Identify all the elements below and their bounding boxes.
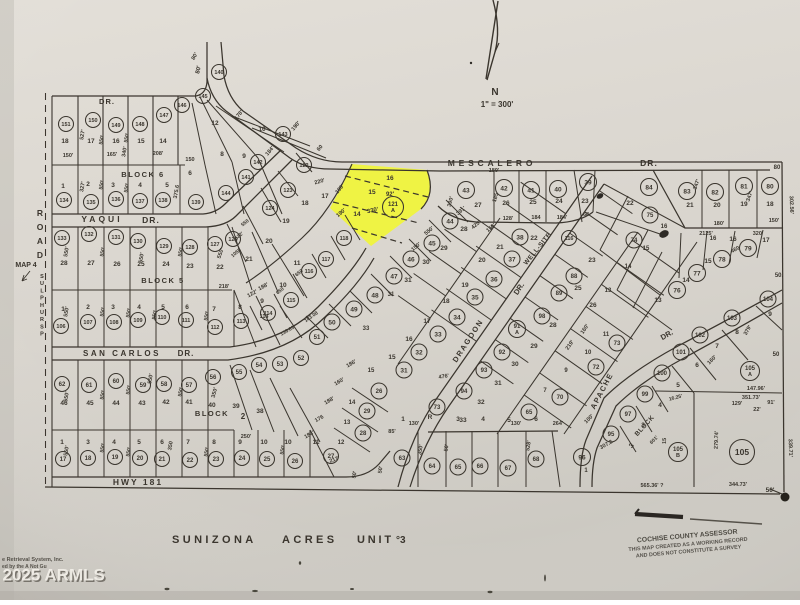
svg-text:1: 1 — [401, 416, 405, 423]
svg-text:264': 264' — [553, 421, 564, 427]
svg-text:P: P — [40, 332, 44, 338]
svg-text:127: 127 — [210, 242, 219, 248]
svg-text:47: 47 — [390, 273, 398, 280]
svg-text:83: 83 — [683, 188, 691, 195]
svg-text:P: P — [40, 296, 44, 302]
svg-text:9: 9 — [768, 311, 772, 318]
svg-text:40: 40 — [208, 402, 216, 409]
svg-text:98: 98 — [539, 314, 546, 320]
svg-text:140: 140 — [214, 70, 223, 76]
svg-text:218': 218' — [219, 284, 230, 290]
svg-text:107: 107 — [83, 320, 92, 326]
svg-text:130': 130' — [511, 421, 522, 427]
svg-text:U: U — [40, 310, 44, 316]
svg-text:75: 75 — [647, 213, 654, 219]
svg-text:146: 146 — [177, 103, 186, 109]
svg-text:26: 26 — [376, 389, 383, 395]
svg-text:141: 141 — [241, 175, 250, 181]
svg-text:104: 104 — [763, 297, 774, 303]
svg-text:U: U — [40, 281, 44, 287]
svg-text:2025 ARMLS: 2025 ARMLS — [3, 566, 105, 585]
svg-text:14: 14 — [353, 211, 361, 218]
svg-text:184': 184' — [557, 215, 568, 221]
svg-text:55: 55 — [236, 370, 243, 376]
svg-text:189': 189' — [489, 168, 500, 174]
svg-text:54: 54 — [256, 363, 263, 369]
svg-text:19: 19 — [282, 218, 290, 225]
svg-text:27: 27 — [474, 202, 482, 209]
svg-text:45: 45 — [428, 240, 436, 247]
svg-text:13: 13 — [605, 288, 612, 294]
svg-text:100: 100 — [657, 371, 668, 377]
svg-text:30: 30 — [422, 259, 430, 266]
svg-text:25: 25 — [529, 199, 537, 206]
svg-text:16: 16 — [112, 138, 120, 145]
svg-text:144: 144 — [221, 191, 231, 197]
svg-text:15: 15 — [643, 246, 650, 252]
svg-text:H: H — [40, 303, 44, 309]
svg-text:26: 26 — [502, 200, 510, 207]
svg-text:6: 6 — [185, 304, 189, 311]
svg-text:13: 13 — [344, 420, 351, 426]
svg-text:39: 39 — [232, 403, 240, 410]
svg-text:51: 51 — [314, 335, 321, 341]
svg-text:36: 36 — [490, 276, 498, 283]
svg-text:12: 12 — [211, 120, 219, 127]
svg-text:MESCALERO: MESCALERO — [448, 158, 537, 168]
svg-text:21: 21 — [686, 202, 694, 209]
svg-text:135: 135 — [86, 200, 95, 206]
svg-text:20: 20 — [265, 238, 273, 245]
svg-text:2: 2 — [86, 304, 90, 311]
svg-text:25: 25 — [574, 285, 582, 292]
svg-text:3: 3 — [111, 304, 115, 311]
svg-text:111: 111 — [182, 318, 191, 324]
svg-text:302.56': 302.56' — [788, 196, 795, 215]
svg-text:81: 81 — [740, 183, 748, 190]
svg-text:130': 130' — [409, 421, 420, 427]
svg-text:132: 132 — [84, 232, 93, 238]
svg-text:33: 33 — [434, 331, 442, 338]
svg-text:5: 5 — [161, 304, 165, 311]
svg-text:20: 20 — [713, 202, 721, 209]
svg-text:9: 9 — [238, 439, 242, 446]
svg-text:23: 23 — [186, 263, 194, 270]
svg-text:29: 29 — [440, 245, 448, 252]
svg-text:2: 2 — [241, 412, 246, 421]
svg-text:20: 20 — [137, 456, 144, 462]
svg-text:S: S — [40, 324, 44, 330]
svg-text:22': 22' — [753, 407, 761, 413]
svg-text:28: 28 — [460, 226, 468, 233]
svg-text:116: 116 — [305, 269, 314, 275]
svg-text:BLOCK 5: BLOCK 5 — [141, 276, 184, 285]
svg-text:UNIT: UNIT — [357, 534, 394, 546]
svg-text:12: 12 — [338, 440, 345, 446]
svg-text:80: 80 — [774, 165, 781, 171]
svg-text:351.73': 351.73' — [742, 395, 761, 401]
svg-text:18: 18 — [85, 456, 92, 462]
svg-text:73: 73 — [614, 341, 621, 347]
svg-text:7: 7 — [186, 439, 190, 446]
svg-text:53: 53 — [277, 362, 284, 368]
svg-text:22: 22 — [187, 458, 194, 464]
svg-text:151: 151 — [61, 122, 70, 128]
svg-text:30: 30 — [511, 361, 519, 368]
svg-text:BLOCK: BLOCK — [195, 409, 229, 418]
svg-text:61: 61 — [86, 383, 93, 389]
svg-text:19: 19 — [112, 455, 119, 461]
svg-text:60: 60 — [113, 379, 120, 385]
svg-text:4: 4 — [658, 402, 662, 409]
svg-text:17: 17 — [762, 237, 770, 244]
svg-text:32: 32 — [477, 399, 485, 406]
svg-text:5: 5 — [165, 182, 169, 189]
svg-text:148: 148 — [135, 122, 144, 128]
svg-text:O: O — [37, 222, 44, 232]
svg-text:D: D — [37, 250, 43, 260]
svg-text:15: 15 — [704, 258, 712, 265]
svg-text:4: 4 — [137, 304, 141, 311]
svg-text:DR.: DR. — [99, 97, 115, 106]
svg-text:17: 17 — [87, 138, 95, 145]
svg-text:344.73': 344.73' — [729, 482, 748, 488]
svg-text:70: 70 — [557, 395, 564, 401]
svg-text:DR.: DR. — [640, 158, 658, 168]
svg-text:28: 28 — [360, 431, 367, 437]
svg-text:A: A — [37, 236, 43, 246]
svg-text:6: 6 — [160, 439, 164, 446]
svg-text:37: 37 — [508, 256, 516, 263]
svg-text:112: 112 — [211, 325, 220, 331]
svg-text:31: 31 — [400, 367, 408, 374]
svg-text:110: 110 — [158, 315, 167, 321]
svg-text:150': 150' — [769, 218, 780, 224]
svg-text:34: 34 — [453, 314, 461, 321]
svg-text:3: 3 — [86, 439, 90, 446]
svg-text:24: 24 — [239, 456, 246, 462]
svg-text:22: 22 — [216, 264, 224, 271]
svg-text:133: 133 — [57, 236, 66, 242]
svg-text:50.: 50. — [775, 273, 784, 279]
svg-text:17: 17 — [60, 457, 67, 463]
svg-text:96: 96 — [578, 454, 586, 461]
svg-text:4: 4 — [112, 439, 116, 446]
svg-text:3: 3 — [641, 422, 645, 429]
svg-text:74: 74 — [631, 238, 638, 244]
svg-text:105: 105 — [735, 447, 749, 457]
svg-text:99: 99 — [642, 392, 649, 398]
svg-text:38: 38 — [516, 234, 524, 241]
svg-text:129': 129' — [732, 401, 743, 407]
svg-text:35: 35 — [471, 294, 479, 301]
svg-text:A: A — [748, 372, 752, 378]
svg-text:41: 41 — [185, 399, 193, 406]
svg-text:116: 116 — [565, 236, 574, 242]
svg-text:136: 136 — [111, 197, 120, 203]
svg-text:28: 28 — [549, 322, 557, 329]
svg-text:S: S — [40, 274, 44, 280]
svg-text:43: 43 — [462, 187, 470, 194]
svg-text:88: 88 — [571, 274, 578, 280]
svg-text:17: 17 — [321, 193, 329, 200]
svg-text:26: 26 — [589, 302, 597, 309]
svg-text:50: 50 — [328, 319, 336, 326]
svg-text:N: N — [491, 87, 498, 98]
svg-text:9: 9 — [242, 153, 246, 160]
svg-text:48: 48 — [371, 292, 379, 299]
svg-text:147: 147 — [159, 113, 168, 119]
svg-text:184: 184 — [531, 215, 541, 221]
svg-text:10: 10 — [260, 439, 268, 446]
svg-text:565.36' ?: 565.36' ? — [640, 483, 664, 489]
svg-text:62: 62 — [59, 382, 66, 388]
svg-text:A: A — [515, 330, 519, 336]
svg-text:8: 8 — [220, 151, 224, 158]
svg-text:8: 8 — [238, 304, 242, 311]
svg-text:150': 150' — [63, 153, 74, 159]
svg-text:23: 23 — [581, 198, 589, 205]
svg-text:150: 150 — [88, 118, 97, 124]
svg-text:14: 14 — [349, 400, 356, 406]
svg-text:2: 2 — [86, 181, 90, 188]
svg-text:128: 128 — [185, 245, 194, 251]
svg-text:115: 115 — [287, 298, 296, 304]
svg-text:20: 20 — [478, 257, 486, 264]
svg-text:114: 114 — [264, 311, 274, 317]
svg-text:65: 65 — [455, 465, 462, 471]
svg-text:A: A — [391, 208, 395, 214]
svg-text:23: 23 — [213, 457, 220, 463]
svg-text:15: 15 — [137, 138, 145, 145]
svg-text:R: R — [40, 317, 44, 323]
svg-text:DR.: DR. — [142, 215, 160, 225]
svg-text:29: 29 — [530, 343, 538, 350]
svg-text:33: 33 — [363, 326, 370, 332]
svg-text:15: 15 — [662, 438, 668, 444]
svg-text:113: 113 — [237, 319, 246, 325]
svg-text:95: 95 — [608, 432, 615, 438]
svg-text:R: R — [428, 414, 433, 421]
svg-text:145: 145 — [198, 94, 207, 100]
svg-text:94: 94 — [461, 389, 468, 395]
svg-text:102: 102 — [695, 333, 706, 339]
svg-text:18: 18 — [766, 201, 774, 208]
svg-text:31: 31 — [388, 292, 395, 298]
svg-text:68: 68 — [533, 457, 540, 463]
svg-text:52: 52 — [298, 356, 305, 362]
svg-text:66: 66 — [477, 464, 484, 470]
svg-text:28: 28 — [60, 260, 68, 267]
svg-text:42: 42 — [500, 185, 508, 192]
svg-text:22: 22 — [626, 200, 634, 207]
svg-text:65: 65 — [526, 410, 533, 416]
svg-text:23: 23 — [588, 257, 596, 264]
svg-text:R: R — [37, 208, 43, 218]
svg-text:180': 180' — [714, 221, 725, 227]
svg-text:4: 4 — [138, 182, 142, 189]
svg-text:1: 1 — [61, 183, 65, 190]
svg-text:93: 93 — [481, 368, 488, 374]
svg-text:31: 31 — [404, 277, 412, 284]
svg-text:58: 58 — [161, 382, 168, 388]
svg-text:1" = 300': 1" = 300' — [481, 100, 514, 109]
svg-text:139: 139 — [191, 200, 200, 206]
svg-text:64: 64 — [429, 464, 436, 470]
svg-text:73: 73 — [434, 405, 441, 411]
svg-text:147.96': 147.96' — [747, 386, 766, 392]
svg-text:4: 4 — [481, 416, 485, 423]
svg-text:149: 149 — [111, 123, 120, 129]
svg-text:16: 16 — [386, 175, 394, 182]
svg-text:130: 130 — [133, 239, 142, 245]
svg-text:137: 137 — [135, 199, 144, 205]
svg-text:56: 56 — [210, 375, 217, 381]
svg-text:45: 45 — [86, 400, 94, 407]
svg-text:11: 11 — [603, 332, 610, 338]
svg-text:128': 128' — [503, 216, 514, 222]
svg-text:24: 24 — [555, 198, 563, 205]
svg-text:97: 97 — [625, 412, 632, 418]
svg-text:46: 46 — [407, 256, 415, 263]
svg-text:e Retrieval System, Inc.: e Retrieval System, Inc. — [2, 557, 64, 563]
svg-text:YAQUI: YAQUI — [81, 214, 122, 224]
svg-text:33: 33 — [459, 417, 467, 424]
svg-text:29: 29 — [364, 409, 371, 415]
svg-text:B: B — [676, 453, 680, 459]
svg-text:3: 3 — [456, 416, 460, 423]
svg-text:21: 21 — [245, 256, 253, 263]
svg-text:32: 32 — [415, 349, 423, 356]
svg-text:1: 1 — [60, 439, 64, 446]
svg-text:134: 134 — [59, 198, 69, 204]
svg-text:138: 138 — [158, 198, 167, 204]
svg-text:SUNIZONA: SUNIZONA — [172, 534, 257, 546]
svg-text:11: 11 — [313, 439, 320, 446]
svg-text:129: 129 — [159, 244, 168, 250]
svg-text:39: 39 — [584, 179, 592, 186]
svg-text:76: 76 — [673, 287, 681, 294]
svg-text:41: 41 — [527, 187, 535, 194]
svg-text:16: 16 — [661, 224, 668, 230]
svg-text:43: 43 — [138, 400, 146, 407]
svg-text:250': 250' — [241, 434, 252, 440]
svg-text:84: 84 — [645, 184, 653, 191]
svg-text:MAP 4: MAP 4 — [15, 262, 36, 269]
svg-text:44: 44 — [446, 218, 454, 225]
svg-text:25: 25 — [264, 457, 271, 463]
svg-text:26: 26 — [292, 459, 299, 465]
svg-text:109: 109 — [133, 318, 142, 324]
svg-text:10: 10 — [258, 126, 266, 133]
svg-text:82: 82 — [711, 189, 719, 196]
svg-text:78: 78 — [718, 256, 726, 263]
svg-text:24: 24 — [162, 261, 170, 268]
svg-text:°3: °3 — [396, 535, 406, 546]
svg-text:89: 89 — [556, 291, 563, 297]
svg-text:339.71': 339.71' — [787, 439, 794, 458]
svg-text:14: 14 — [682, 277, 690, 284]
svg-text:6: 6 — [534, 416, 538, 423]
svg-text:103: 103 — [727, 316, 738, 322]
svg-text:79: 79 — [744, 245, 752, 252]
svg-text:18: 18 — [442, 298, 450, 305]
svg-text:31: 31 — [494, 380, 502, 387]
svg-text:50: 50 — [773, 352, 780, 358]
svg-text:15: 15 — [388, 354, 396, 361]
svg-text:5: 5 — [137, 439, 141, 446]
svg-text:165': 165' — [107, 152, 118, 158]
svg-text:11: 11 — [294, 260, 301, 267]
svg-text:15: 15 — [368, 189, 376, 196]
svg-text:92: 92 — [499, 350, 506, 356]
svg-text:7: 7 — [715, 343, 719, 350]
svg-text:101: 101 — [676, 350, 687, 356]
svg-text:BLOCK 6: BLOCK 6 — [121, 170, 164, 179]
svg-text:63: 63 — [399, 456, 406, 462]
svg-text:91': 91' — [767, 400, 775, 406]
svg-text:143: 143 — [278, 132, 287, 138]
svg-text:18: 18 — [301, 200, 309, 207]
svg-text:44: 44 — [112, 400, 120, 407]
svg-text:14: 14 — [159, 138, 167, 145]
svg-text:HWY 181: HWY 181 — [113, 477, 163, 487]
svg-text:13: 13 — [654, 297, 662, 304]
svg-text:9: 9 — [260, 298, 264, 305]
svg-text:16: 16 — [405, 336, 413, 343]
svg-text:106: 106 — [56, 324, 65, 330]
svg-text:92': 92' — [386, 192, 395, 198]
svg-text:DR.: DR. — [178, 349, 195, 358]
svg-text:131: 131 — [111, 235, 120, 241]
svg-text:16: 16 — [710, 236, 717, 242]
svg-text:40: 40 — [554, 186, 562, 193]
svg-text:38: 38 — [256, 408, 264, 415]
svg-text:42: 42 — [162, 399, 170, 406]
svg-text:77: 77 — [693, 270, 701, 277]
svg-text:6: 6 — [188, 170, 192, 177]
svg-text:57: 57 — [186, 383, 193, 389]
svg-text:19: 19 — [461, 282, 469, 289]
svg-text:SAN CARLOS: SAN CARLOS — [83, 349, 161, 358]
svg-text:21: 21 — [496, 244, 504, 251]
svg-text:22: 22 — [530, 235, 538, 242]
svg-text:16: 16 — [729, 236, 737, 243]
svg-text:85': 85' — [388, 429, 396, 435]
svg-text:27: 27 — [87, 260, 95, 267]
svg-text:118: 118 — [340, 236, 349, 242]
svg-text:3: 3 — [111, 182, 115, 189]
svg-text:21: 21 — [159, 457, 166, 463]
svg-text:279.74': 279.74' — [714, 430, 721, 449]
svg-text:10: 10 — [284, 439, 292, 446]
svg-text:15: 15 — [368, 368, 375, 374]
svg-text:8: 8 — [212, 439, 216, 446]
svg-text:ACRES: ACRES — [282, 534, 338, 546]
svg-text:72: 72 — [593, 365, 600, 371]
svg-text:80: 80 — [766, 183, 774, 190]
svg-text:67: 67 — [505, 466, 512, 472]
svg-text:108: 108 — [109, 320, 118, 326]
svg-text:8: 8 — [735, 329, 739, 336]
svg-text:150: 150 — [185, 157, 194, 163]
svg-text:123: 123 — [283, 188, 292, 194]
svg-text:117: 117 — [322, 257, 331, 263]
svg-text:17: 17 — [423, 318, 431, 325]
svg-text:10: 10 — [585, 350, 592, 356]
svg-text:26: 26 — [113, 261, 121, 268]
svg-text:5: 5 — [676, 382, 680, 389]
